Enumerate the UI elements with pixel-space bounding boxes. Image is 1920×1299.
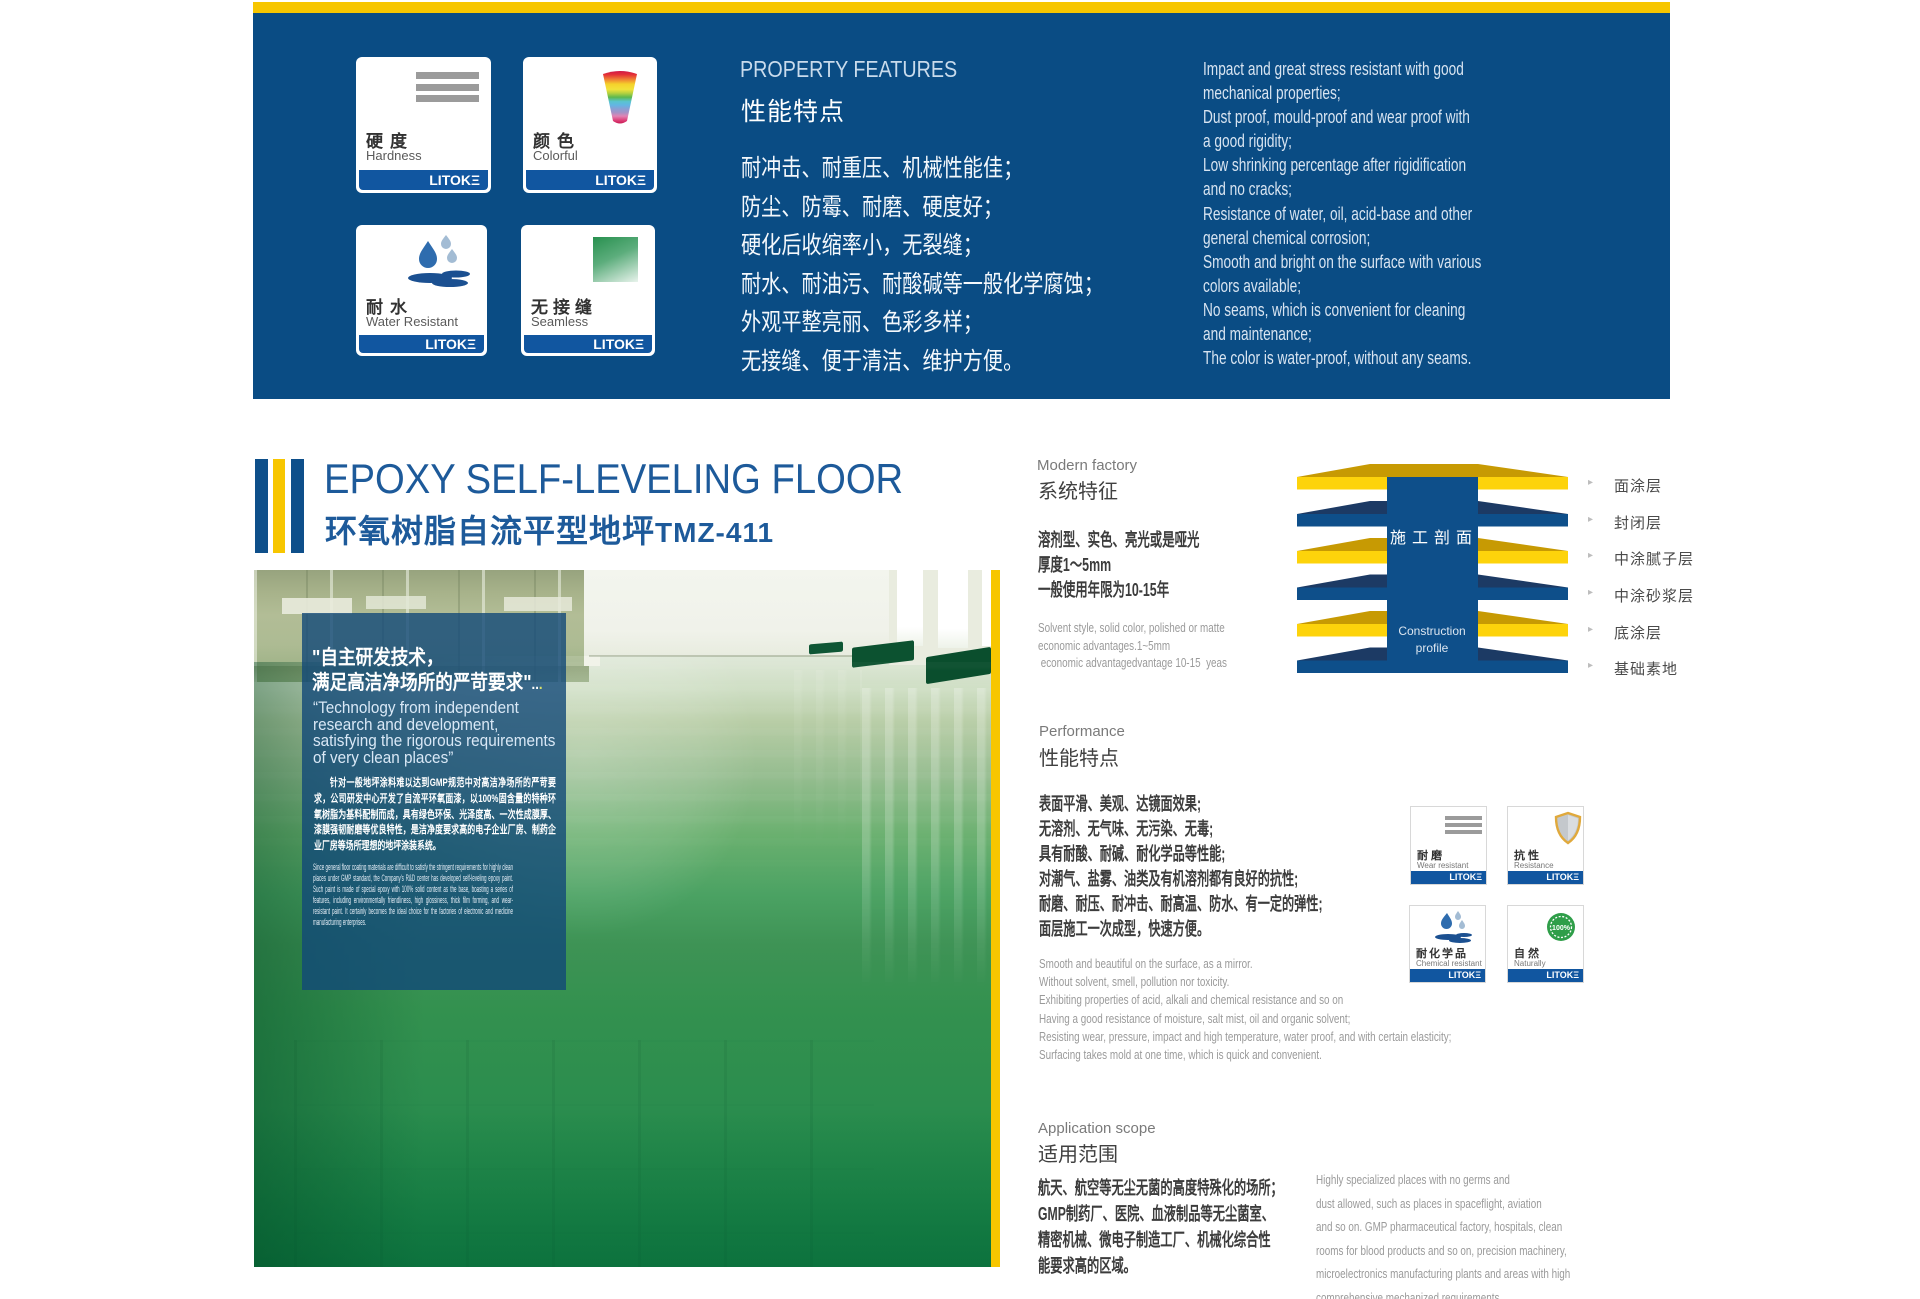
svg-text:Construction: Construction (1398, 624, 1465, 638)
svg-text:profile: profile (1416, 641, 1449, 655)
svg-text:100%: 100% (1552, 925, 1571, 932)
svg-text:施工剖面: 施工剖面 (1390, 529, 1478, 547)
